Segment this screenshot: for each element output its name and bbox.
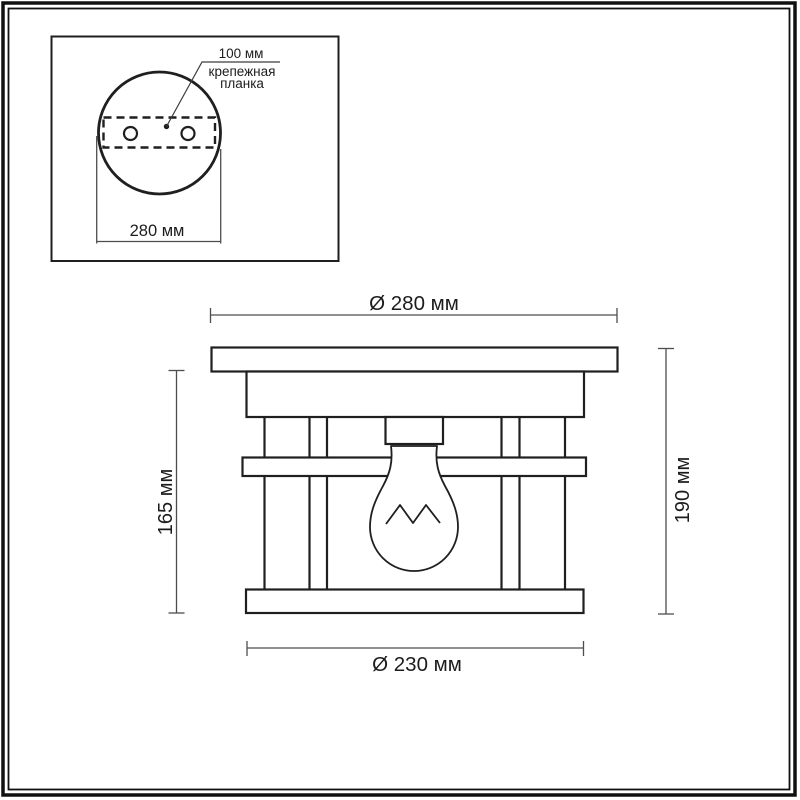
lamp-socket xyxy=(386,417,444,444)
bracket-label-line2: планка xyxy=(220,76,264,91)
plate-width-label: 280 мм xyxy=(130,222,185,240)
overall-height-label: 190 мм xyxy=(672,457,694,523)
top-diameter-label: Ø 280 мм xyxy=(369,292,459,315)
inset-panel-box xyxy=(52,37,339,262)
top-plate xyxy=(212,348,618,372)
hole-spacing-label: 100 мм xyxy=(219,46,264,61)
bottom-band xyxy=(246,590,584,614)
spec-drawing-page: 100 мм крепежная планка 280 мм Ø 280 мм xyxy=(0,0,800,800)
body-tier xyxy=(247,372,585,418)
inner-height-label: 165 мм xyxy=(155,469,177,535)
technical-drawing-canvas: 100 мм крепежная планка 280 мм Ø 280 мм xyxy=(0,0,800,800)
bottom-diameter-label: Ø 230 мм xyxy=(372,653,462,676)
